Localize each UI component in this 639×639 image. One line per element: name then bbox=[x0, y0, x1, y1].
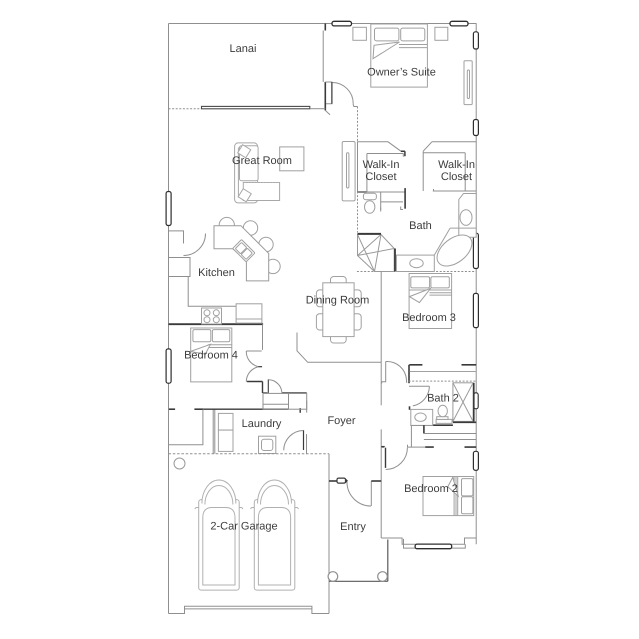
svg-text:Walk-In: Walk-In bbox=[438, 159, 475, 171]
svg-text:Walk-In: Walk-In bbox=[363, 159, 400, 171]
svg-text:Dining Room: Dining Room bbox=[306, 295, 370, 307]
svg-text:Great Room: Great Room bbox=[232, 155, 292, 167]
svg-text:Foyer: Foyer bbox=[327, 415, 355, 427]
svg-text:Bath 2: Bath 2 bbox=[427, 393, 459, 405]
svg-text:Entry: Entry bbox=[340, 521, 366, 533]
svg-text:Closet: Closet bbox=[365, 171, 396, 183]
svg-text:Bedroom 4: Bedroom 4 bbox=[184, 350, 238, 362]
svg-text:Bedroom 3: Bedroom 3 bbox=[402, 312, 456, 324]
svg-text:Laundry: Laundry bbox=[242, 418, 282, 430]
svg-text:Kitchen: Kitchen bbox=[198, 267, 235, 279]
svg-text:Closet: Closet bbox=[441, 171, 472, 183]
svg-text:Owner’s Suite: Owner’s Suite bbox=[367, 67, 436, 79]
svg-text:Lanai: Lanai bbox=[230, 43, 257, 55]
svg-text:Bedroom 2: Bedroom 2 bbox=[404, 483, 458, 495]
svg-text:2-Car Garage: 2-Car Garage bbox=[210, 521, 277, 533]
svg-text:Bath: Bath bbox=[409, 220, 432, 232]
